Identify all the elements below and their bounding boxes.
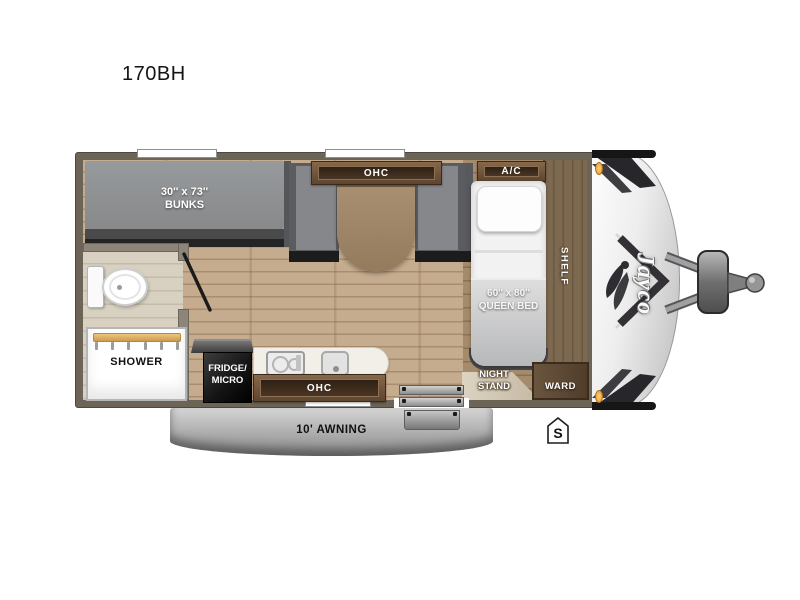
spare-tire-letter: S xyxy=(553,425,562,441)
step-bolt xyxy=(407,412,411,416)
step-bolt xyxy=(402,399,406,403)
curtain-hook xyxy=(127,342,130,350)
kitchen-ohc-label: OHC xyxy=(307,383,332,394)
stove-burner xyxy=(272,356,289,373)
bathroom-wall xyxy=(83,243,188,252)
fridge-line1: FRIDGE/ xyxy=(203,363,252,375)
bunks-label: 30'' x 73'' BUNKS xyxy=(85,186,284,212)
window xyxy=(325,149,405,158)
bathroom-door-swing xyxy=(180,250,216,316)
propane-cover xyxy=(698,251,728,313)
sink-faucet xyxy=(333,366,339,372)
entry-step xyxy=(399,397,464,407)
fridge-top-panel xyxy=(191,339,254,353)
curtain-hook xyxy=(176,342,179,350)
dinette-overhead-cabinet: OHC xyxy=(311,161,442,185)
queen-bed-name-text: QUEEN BED xyxy=(471,300,546,313)
bunks-name-text: BUNKS xyxy=(85,199,284,212)
hitch-ball xyxy=(746,274,764,292)
dinette-ohc-label: OHC xyxy=(364,168,389,179)
curtain-hook xyxy=(95,342,98,350)
window xyxy=(137,149,217,158)
step-bolt xyxy=(457,399,461,403)
hitch-assembly xyxy=(652,243,772,323)
night-stand-line1: NIGHT xyxy=(458,369,530,381)
cap-edge-trim xyxy=(592,402,656,410)
shower-curtain-rod xyxy=(93,333,181,342)
shower-label: SHOWER xyxy=(86,356,187,368)
entry-step xyxy=(404,410,460,430)
shower-curtain-hooks xyxy=(95,342,179,350)
stove-control-panel xyxy=(296,355,301,371)
queen-bed-label: 60'' x 80'' QUEEN BED xyxy=(471,287,546,313)
marker-light xyxy=(595,390,603,403)
kitchen-sink xyxy=(321,351,349,376)
ac-label: A/C xyxy=(501,166,521,177)
wardrobe-label: WARD xyxy=(532,381,589,392)
bed-sheet-fold xyxy=(474,250,543,253)
cabinet-face: OHC xyxy=(318,166,435,180)
night-stand-line2: STAND xyxy=(458,381,530,393)
step-bolt xyxy=(402,387,406,391)
jayco-bird-icon xyxy=(598,256,634,322)
cabinet-face: OHC xyxy=(260,379,379,397)
curtain-hook xyxy=(160,342,163,350)
step-bolt xyxy=(457,387,461,391)
fridge-line2: MICRO xyxy=(203,375,252,387)
stove-cooktop xyxy=(266,351,305,376)
queen-bed-size-text: 60'' x 80'' xyxy=(471,287,546,300)
ac-unit: A/C xyxy=(477,161,546,182)
dinette-table xyxy=(337,185,415,272)
kitchen-overhead-cabinet: OHC xyxy=(253,374,386,402)
cap-edge-trim xyxy=(592,150,656,158)
page-title: 170BH xyxy=(122,63,186,86)
step-bolt xyxy=(453,412,457,416)
marker-light xyxy=(595,162,603,175)
fridge-micro-label: FRIDGE/ MICRO xyxy=(203,363,252,387)
curtain-hook xyxy=(144,342,147,350)
night-stand-label: NIGHT STAND xyxy=(458,369,530,393)
bunk-base xyxy=(85,229,284,239)
toilet xyxy=(102,268,148,306)
dinette-bench-base xyxy=(415,251,473,262)
shelf-label: SHELF xyxy=(556,247,572,331)
bunks-size-text: 30'' x 73'' xyxy=(85,186,284,199)
bed-pillow xyxy=(477,186,542,232)
curtain-hook xyxy=(111,342,114,350)
floorplan-page: 170BH 30'' x 73'' BUNKS OHC A/C 60'' x 8… xyxy=(0,0,800,600)
entry-step xyxy=(399,385,464,395)
dinette-bench-base xyxy=(289,251,339,262)
cabinet-face: A/C xyxy=(484,166,539,177)
toilet-flush-button xyxy=(117,285,122,290)
spare-tire-marker: S xyxy=(547,417,569,444)
